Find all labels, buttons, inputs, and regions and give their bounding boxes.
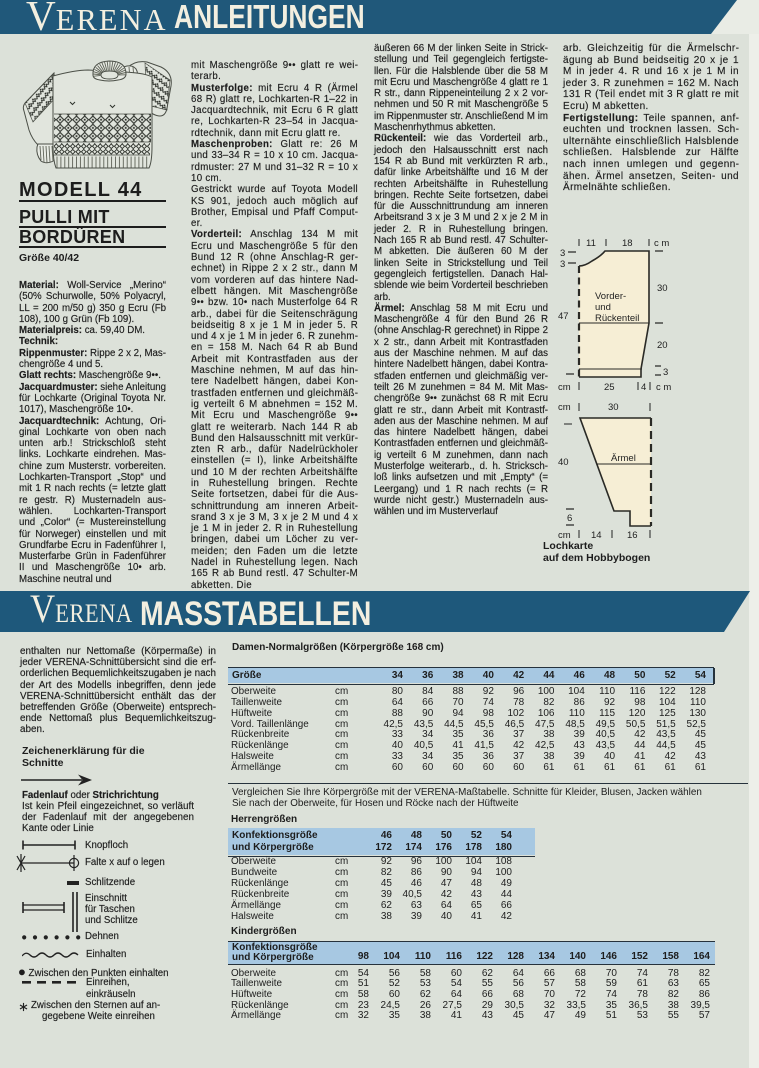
svg-text:cm: cm <box>558 382 571 393</box>
svg-text:30: 30 <box>657 283 668 294</box>
svg-text:Ärmel: Ärmel <box>611 453 636 464</box>
svg-text:Vorder-: Vorder- <box>595 291 626 302</box>
svg-text:3: 3 <box>560 259 565 270</box>
svg-text:16: 16 <box>627 530 638 541</box>
svg-text:3: 3 <box>560 248 565 259</box>
svg-text:c m: c m <box>656 382 671 393</box>
svg-text:4: 4 <box>641 382 646 393</box>
svg-text:30: 30 <box>608 402 619 413</box>
svg-text:40: 40 <box>558 457 569 468</box>
svg-text:Rückenteil: Rückenteil <box>595 313 639 324</box>
svg-text:und: und <box>595 302 611 313</box>
svg-text:3: 3 <box>663 367 668 378</box>
svg-text:47: 47 <box>558 311 569 322</box>
svg-text:18: 18 <box>622 238 633 249</box>
svg-text:cm: cm <box>558 402 571 413</box>
svg-text:25: 25 <box>604 382 615 393</box>
svg-text:6: 6 <box>567 513 572 524</box>
svg-text:20: 20 <box>657 340 668 351</box>
svg-text:c m: c m <box>654 238 669 249</box>
svg-text:11: 11 <box>586 238 596 249</box>
